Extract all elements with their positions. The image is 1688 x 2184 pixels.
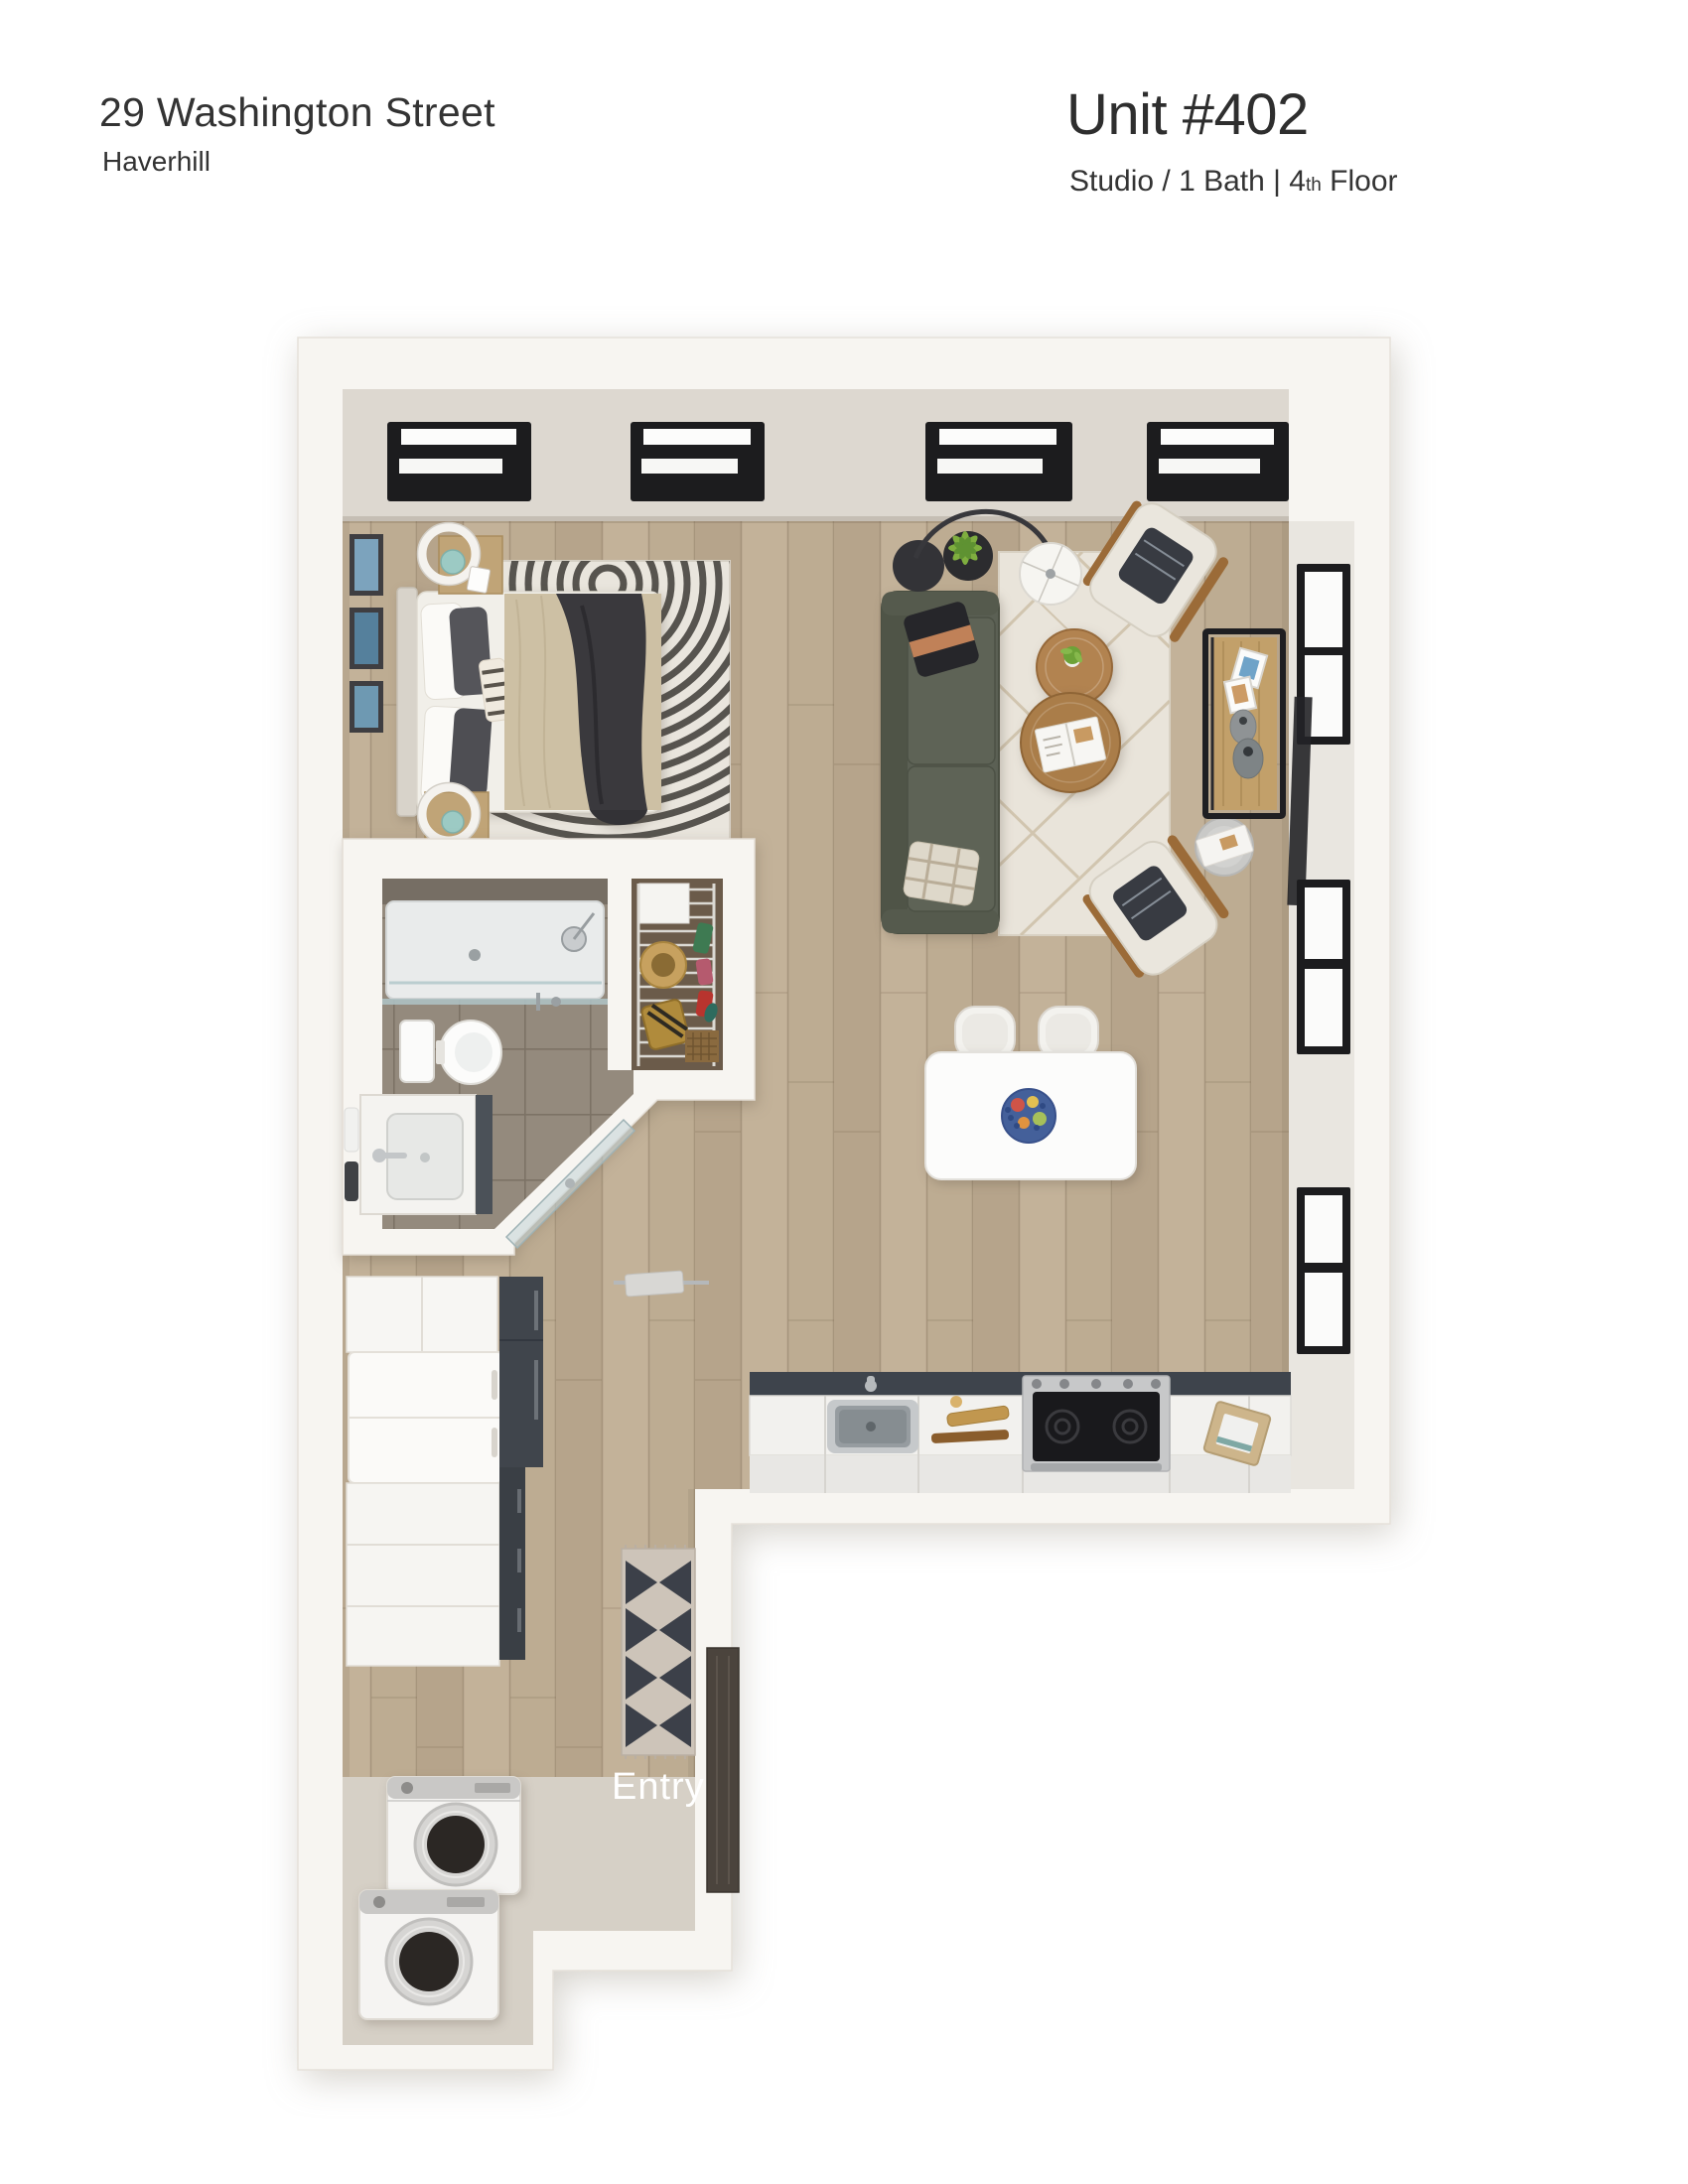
entry-label: Entry	[612, 1766, 705, 1808]
refrigerator	[349, 1352, 503, 1483]
skylight-1	[387, 422, 531, 501]
potted-plant	[948, 531, 982, 565]
window-2	[1297, 880, 1350, 1054]
floor-plan: Entry	[0, 0, 1688, 2184]
console-table	[1205, 631, 1283, 816]
shower	[382, 879, 608, 1011]
vanity-cabinet-front	[476, 1095, 492, 1214]
wall-art	[350, 534, 383, 733]
skylight-2	[631, 422, 765, 501]
sofa-pillow-plaid	[903, 841, 980, 906]
window-3	[1297, 1187, 1350, 1354]
entry-rug	[622, 1545, 695, 1759]
floorplan-page: 29 Washington Street Haverhill Unit #402…	[0, 0, 1688, 2184]
range	[1023, 1376, 1170, 1471]
photo-frame	[467, 566, 491, 593]
sofa	[882, 592, 999, 933]
washer	[359, 1890, 498, 2019]
shower-drain	[469, 949, 481, 961]
entry-door	[707, 1648, 739, 1892]
fruit-bowl	[1002, 1089, 1055, 1143]
vanity-sink	[345, 1095, 492, 1214]
skylight-4	[1147, 422, 1289, 501]
closet	[632, 879, 723, 1070]
dryer	[387, 1777, 520, 1894]
pouf	[1196, 818, 1253, 876]
tall-cabinets	[347, 1277, 543, 1666]
plant-side-table	[943, 531, 993, 581]
coffee-table-large	[1021, 693, 1120, 792]
cooktop	[1033, 1392, 1160, 1461]
sofa-backrest	[882, 592, 908, 933]
skylight-3	[925, 422, 1072, 501]
headboard	[397, 588, 417, 816]
toilet	[400, 1021, 501, 1084]
storage-box	[639, 884, 689, 923]
nightstand-2	[418, 783, 490, 846]
